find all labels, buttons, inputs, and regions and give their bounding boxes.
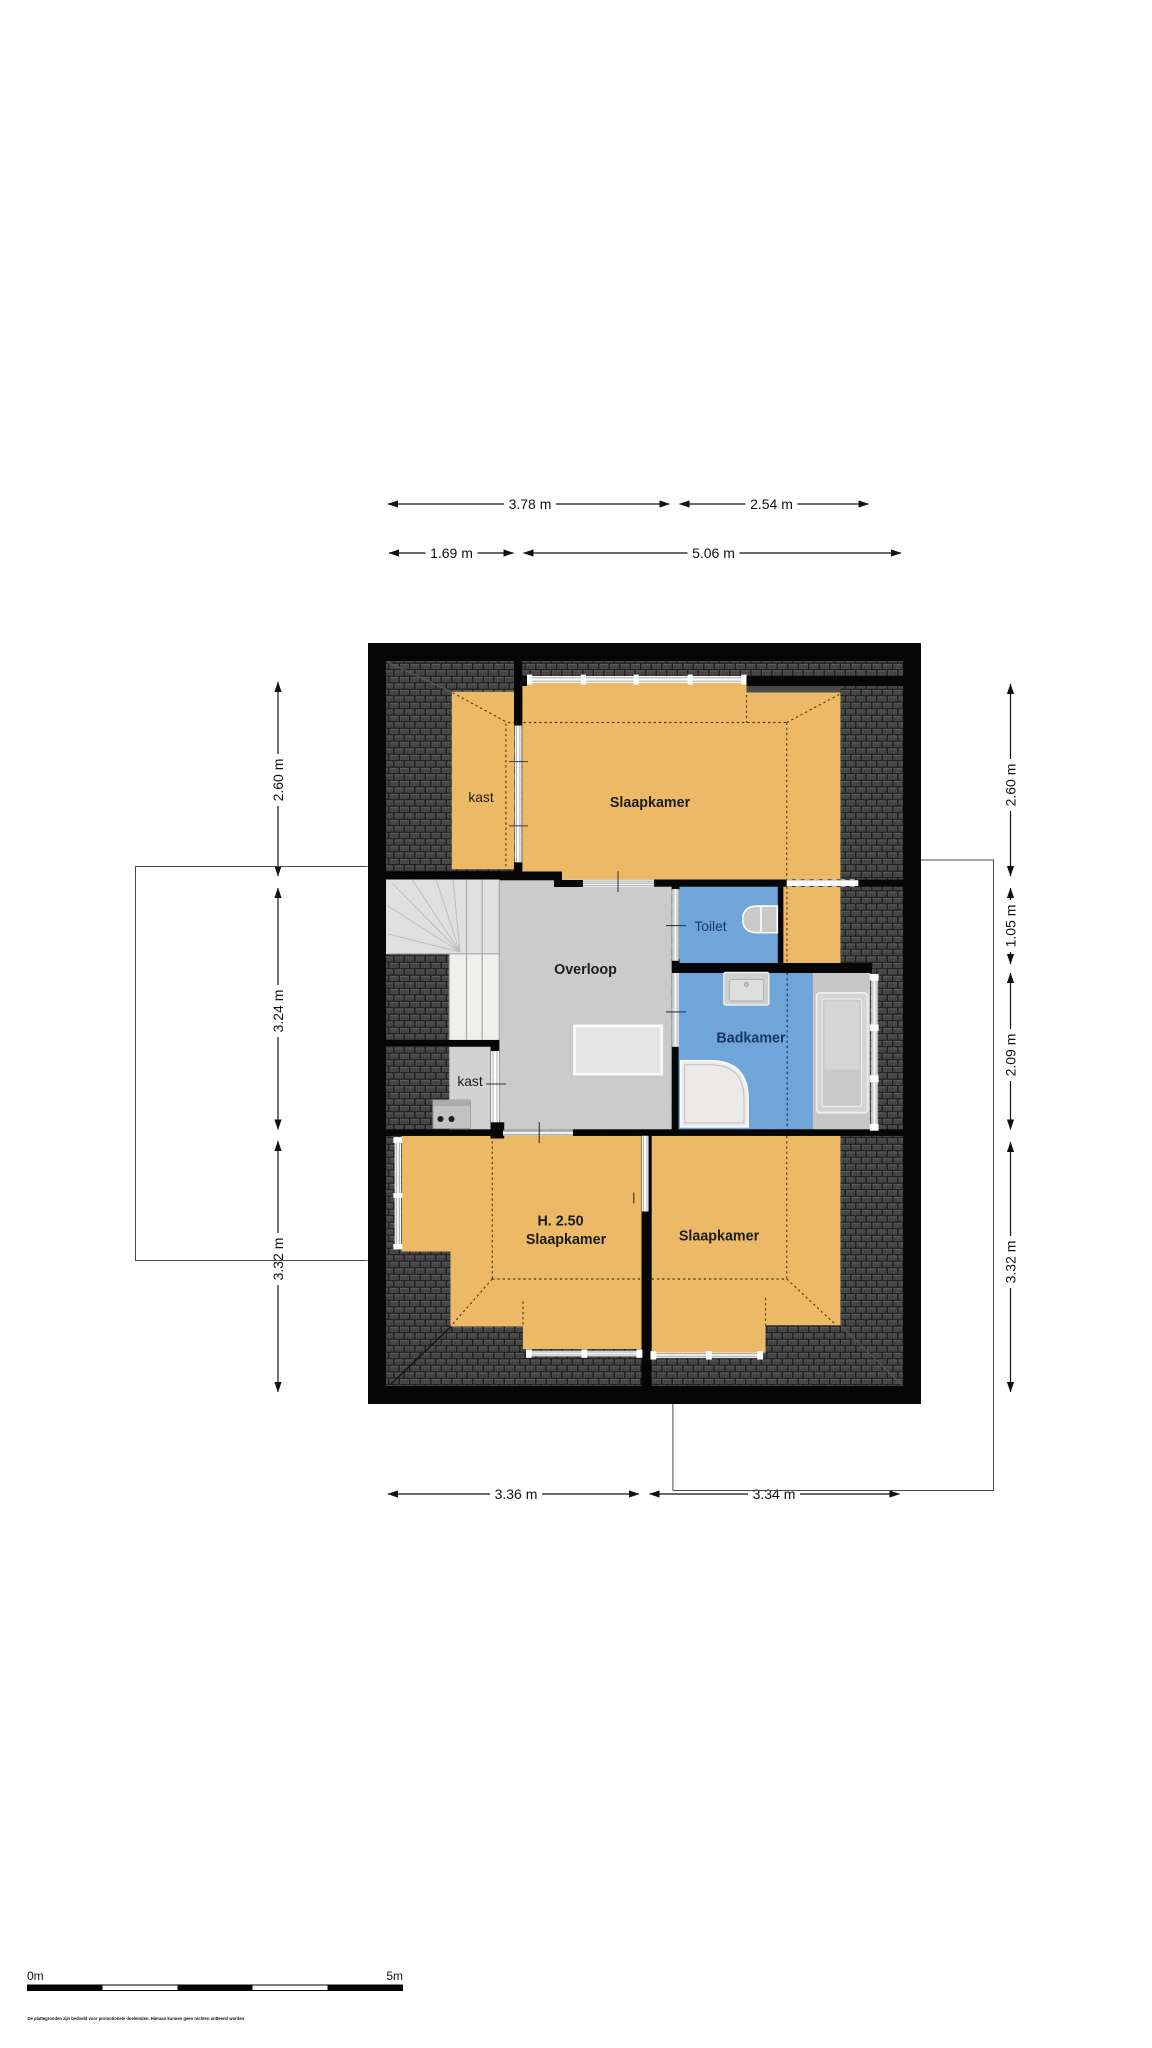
svg-text:1.69 m: 1.69 m [430,545,473,561]
svg-text:5m: 5m [386,1969,403,1983]
svg-text:0m: 0m [27,1969,44,1983]
svg-text:Overloop: Overloop [554,962,617,978]
svg-text:2.60 m: 2.60 m [270,759,286,802]
svg-text:De plattegronden zijn bedoeld: De plattegronden zijn bedoeld voor promo… [28,2016,245,2021]
svg-text:3.24 m: 3.24 m [270,990,286,1033]
svg-text:3.32 m: 3.32 m [1003,1241,1019,1284]
svg-text:Slaapkamer: Slaapkamer [610,795,691,811]
svg-text:Toilet: Toilet [694,919,726,934]
svg-text:kast: kast [457,1074,482,1089]
svg-text:2.09 m: 2.09 m [1003,1034,1019,1077]
svg-text:3.32 m: 3.32 m [270,1238,286,1281]
svg-text:Slaapkamer: Slaapkamer [679,1229,760,1245]
svg-text:3.78 m: 3.78 m [509,496,552,512]
svg-text:H. 2.50: H. 2.50 [537,1214,583,1230]
svg-text:Badkamer: Badkamer [716,1031,786,1047]
svg-text:3.34 m: 3.34 m [753,1486,796,1502]
svg-text:1.05 m: 1.05 m [1003,905,1019,948]
svg-text:2.60 m: 2.60 m [1003,764,1019,807]
svg-text:Slaapkamer: Slaapkamer [526,1232,607,1248]
svg-text:kast: kast [468,790,493,805]
svg-text:2.54 m: 2.54 m [750,496,793,512]
svg-text:5.06 m: 5.06 m [692,545,735,561]
svg-text:3.36 m: 3.36 m [495,1486,538,1502]
